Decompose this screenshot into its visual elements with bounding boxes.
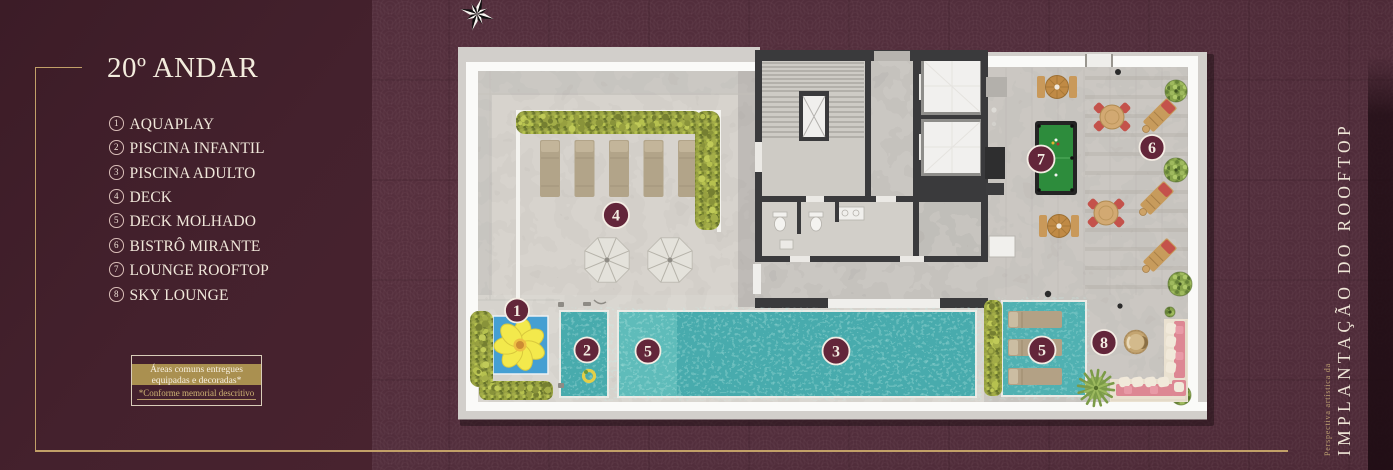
svg-text:7: 7 bbox=[1037, 152, 1045, 169]
svg-text:3: 3 bbox=[832, 344, 840, 361]
svg-text:5: 5 bbox=[1038, 343, 1046, 360]
svg-text:8: 8 bbox=[1100, 335, 1108, 352]
svg-text:2: 2 bbox=[583, 343, 591, 360]
svg-text:4: 4 bbox=[612, 208, 620, 225]
svg-text:1: 1 bbox=[513, 303, 521, 320]
svg-text:5: 5 bbox=[644, 344, 652, 361]
svg-text:6: 6 bbox=[1148, 140, 1156, 157]
